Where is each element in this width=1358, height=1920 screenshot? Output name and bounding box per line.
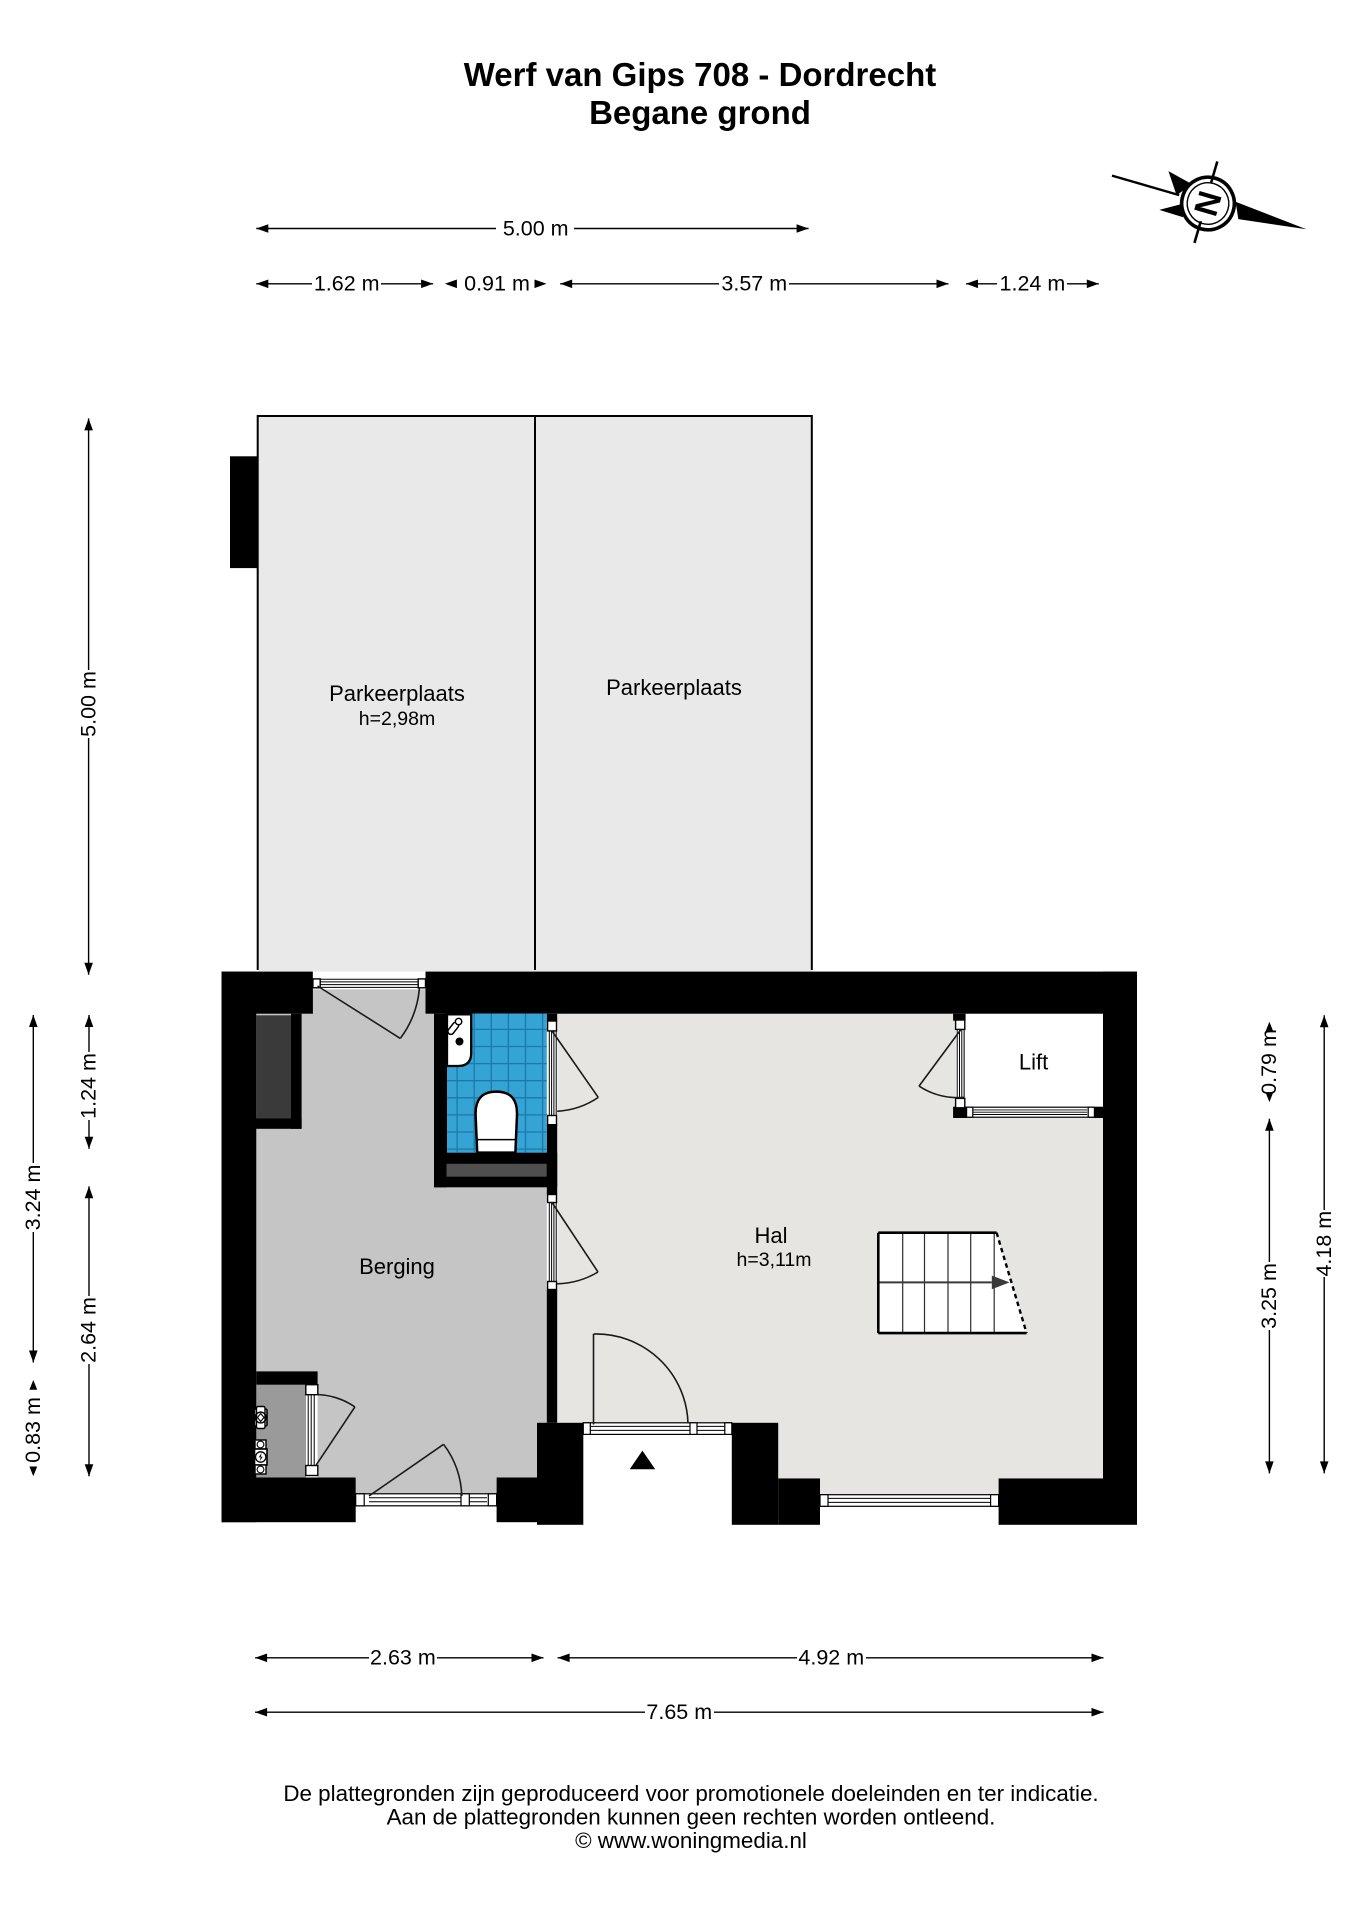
svg-text:Lift: Lift [1019, 1050, 1048, 1075]
svg-text:Hal: Hal [754, 1223, 787, 1248]
svg-text:4.92 m: 4.92 m [798, 1646, 864, 1670]
svg-text:0.79 m: 0.79 m [1257, 1029, 1281, 1095]
svg-text:Aan de plattegronden kunnen ge: Aan de plattegronden kunnen geen rechten… [387, 1805, 996, 1830]
svg-text:5.00 m: 5.00 m [503, 216, 569, 240]
svg-text:0.91 m: 0.91 m [464, 272, 530, 296]
svg-text:© www.woningmedia.nl: © www.woningmedia.nl [575, 1828, 807, 1853]
svg-text:2.64 m: 2.64 m [77, 1297, 101, 1363]
svg-text:Parkeerplaats: Parkeerplaats [606, 675, 742, 700]
svg-text:Werf van Gips 708 - Dordrecht: Werf van Gips 708 - Dordrecht [464, 56, 937, 93]
svg-text:1.24 m: 1.24 m [77, 1053, 101, 1119]
svg-text:h=3,11m: h=3,11m [737, 1249, 812, 1271]
svg-text:3.57 m: 3.57 m [721, 272, 787, 296]
svg-text:2.63 m: 2.63 m [370, 1646, 436, 1670]
svg-text:1.62 m: 1.62 m [314, 272, 380, 296]
svg-text:4.18 m: 4.18 m [1312, 1211, 1336, 1277]
svg-text:h=2,98m: h=2,98m [359, 708, 435, 730]
svg-text:0.83 m: 0.83 m [21, 1397, 45, 1463]
svg-text:Berging: Berging [359, 1254, 435, 1279]
svg-text:3.24 m: 3.24 m [21, 1165, 45, 1231]
svg-text:3.25 m: 3.25 m [1257, 1263, 1281, 1329]
svg-text:5.00 m: 5.00 m [76, 671, 100, 737]
svg-text:Begane grond: Begane grond [589, 94, 811, 131]
svg-text:1.24 m: 1.24 m [1000, 272, 1066, 296]
svg-text:Parkeerplaats: Parkeerplaats [329, 681, 465, 706]
svg-text:De plattegronden zijn geproduc: De plattegronden zijn geproduceerd voor … [283, 1781, 1098, 1806]
svg-text:7.65 m: 7.65 m [646, 1700, 712, 1724]
